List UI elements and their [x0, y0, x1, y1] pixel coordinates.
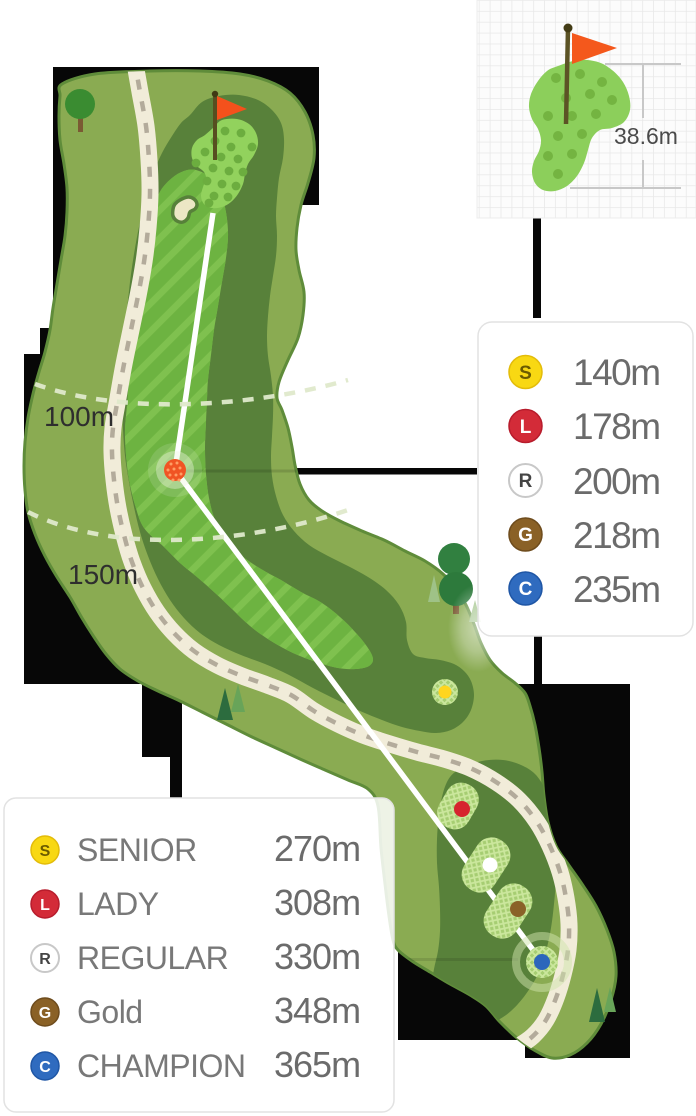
svg-text:R: R: [519, 471, 533, 492]
svg-text:G: G: [39, 1005, 51, 1022]
svg-text:235m: 235m: [573, 569, 660, 610]
svg-text:C: C: [519, 579, 533, 600]
svg-text:330m: 330m: [274, 936, 360, 977]
svg-text:REGULAR: REGULAR: [77, 940, 228, 976]
svg-text:LADY: LADY: [77, 886, 159, 922]
svg-text:308m: 308m: [274, 882, 360, 923]
svg-text:218m: 218m: [573, 515, 660, 556]
svg-text:CHAMPION: CHAMPION: [77, 1048, 245, 1084]
svg-text:178m: 178m: [573, 406, 660, 447]
svg-text:S: S: [40, 843, 51, 860]
svg-text:270m: 270m: [274, 828, 360, 869]
svg-text:100m: 100m: [44, 401, 114, 432]
svg-text:SENIOR: SENIOR: [77, 832, 197, 868]
svg-text:348m: 348m: [274, 990, 360, 1031]
svg-text:L: L: [520, 417, 532, 438]
svg-text:Gold: Gold: [77, 994, 143, 1030]
svg-text:200m: 200m: [573, 461, 660, 502]
svg-text:G: G: [518, 525, 533, 546]
svg-text:S: S: [519, 363, 532, 384]
svg-text:365m: 365m: [274, 1044, 360, 1085]
svg-text:140m: 140m: [573, 352, 660, 393]
svg-text:150m: 150m: [68, 559, 138, 590]
svg-text:R: R: [39, 951, 51, 968]
svg-text:38.6m: 38.6m: [614, 123, 678, 149]
svg-text:C: C: [39, 1059, 51, 1076]
svg-text:L: L: [40, 897, 50, 914]
